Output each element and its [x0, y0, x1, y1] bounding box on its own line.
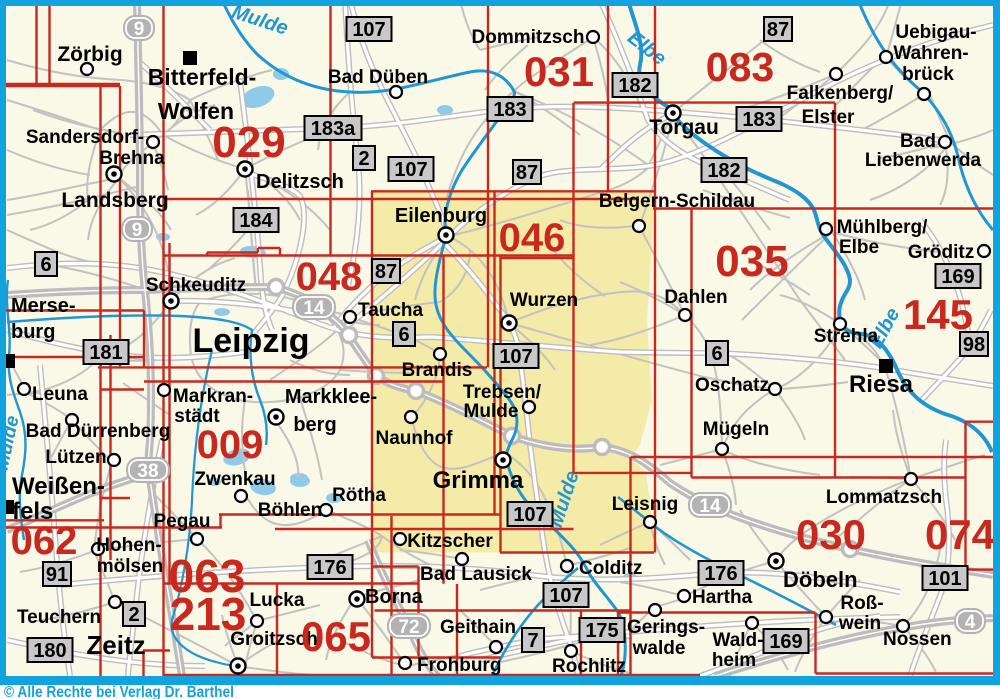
svg-text:38: 38 — [137, 461, 158, 482]
svg-text:Elbe: Elbe — [839, 237, 879, 258]
svg-text:Wahren-: Wahren- — [893, 43, 968, 64]
svg-text:Dahlen: Dahlen — [664, 287, 727, 308]
svg-text:Sandersdorf-: Sandersdorf- — [26, 127, 144, 148]
svg-text:9: 9 — [132, 220, 143, 241]
svg-text:6: 6 — [398, 324, 409, 346]
svg-text:Teuchern: Teuchern — [17, 607, 101, 628]
svg-text:176: 176 — [704, 563, 737, 585]
svg-text:183a: 183a — [311, 118, 356, 140]
svg-text:Rötha: Rötha — [332, 485, 386, 506]
svg-text:Trebsen/: Trebsen/ — [463, 382, 542, 403]
svg-text:181: 181 — [89, 342, 122, 364]
svg-text:Merse-: Merse- — [11, 295, 75, 317]
svg-text:2: 2 — [128, 604, 139, 626]
svg-text:Bad Dürrenberg: Bad Dürrenberg — [26, 421, 171, 442]
svg-text:107: 107 — [394, 159, 427, 181]
svg-text:Roß-: Roß- — [840, 593, 883, 614]
svg-text:walde: walde — [632, 638, 686, 659]
svg-text:031: 031 — [524, 48, 594, 95]
svg-text:Markran-: Markran- — [173, 386, 253, 407]
svg-text:Schkeuditz: Schkeuditz — [146, 275, 246, 296]
svg-text:107: 107 — [499, 346, 532, 368]
svg-text:Leuna: Leuna — [32, 384, 88, 405]
svg-text:Lützen: Lützen — [45, 447, 106, 468]
svg-text:87: 87 — [375, 261, 397, 283]
svg-text:Dommitzsch: Dommitzsch — [472, 27, 585, 48]
svg-text:035: 035 — [715, 237, 788, 286]
svg-text:182: 182 — [707, 160, 740, 182]
svg-text:Markklee-: Markklee- — [285, 386, 377, 408]
svg-text:184: 184 — [239, 210, 273, 232]
svg-text:72: 72 — [398, 617, 419, 638]
svg-text:048: 048 — [296, 255, 363, 299]
svg-text:Strehla: Strehla — [814, 326, 879, 347]
svg-text:Uebigau-: Uebigau- — [895, 22, 976, 43]
svg-text:Leisnig: Leisnig — [612, 494, 679, 515]
svg-text:Mügeln: Mügeln — [703, 419, 770, 440]
svg-text:berg: berg — [293, 414, 336, 436]
svg-text:Leipzig: Leipzig — [192, 322, 309, 360]
svg-text:Brehna: Brehna — [99, 148, 165, 169]
svg-text:4: 4 — [965, 612, 976, 633]
svg-text:2: 2 — [358, 148, 369, 170]
svg-text:Zwenkau: Zwenkau — [194, 469, 275, 490]
svg-text:101: 101 — [928, 568, 961, 590]
svg-text:062: 062 — [11, 519, 78, 563]
svg-text:176: 176 — [313, 557, 346, 579]
svg-text:Elster: Elster — [802, 107, 855, 128]
svg-text:029: 029 — [212, 118, 285, 167]
svg-text:Lucka: Lucka — [250, 590, 305, 611]
svg-text:Lommatzsch: Lommatzsch — [826, 487, 942, 508]
svg-text:Landsberg: Landsberg — [61, 189, 168, 212]
svg-text:Delitzsch: Delitzsch — [256, 171, 344, 193]
svg-text:Zörbig: Zörbig — [57, 43, 122, 66]
svg-text:Bad Düben: Bad Düben — [328, 67, 428, 88]
svg-text:Nossen: Nossen — [883, 629, 952, 650]
svg-text:180: 180 — [33, 640, 66, 662]
svg-text:6: 6 — [40, 254, 51, 276]
svg-text:Colditz: Colditz — [579, 558, 642, 579]
svg-text:065: 065 — [301, 613, 371, 660]
svg-text:Bitterfeld-: Bitterfeld- — [148, 64, 257, 90]
svg-text:Zeitz: Zeitz — [86, 630, 145, 660]
svg-text:91: 91 — [46, 564, 68, 586]
svg-text:Bad Lausick: Bad Lausick — [420, 564, 532, 585]
svg-text:213: 213 — [170, 588, 247, 640]
svg-text:Weißen-: Weißen- — [12, 473, 105, 500]
svg-text:mölsen: mölsen — [97, 556, 164, 577]
svg-text:046: 046 — [499, 216, 566, 260]
svg-text:Riesa: Riesa — [849, 371, 914, 398]
svg-text:Wurzen: Wurzen — [510, 290, 578, 311]
svg-text:Kitzscher: Kitzscher — [407, 531, 493, 552]
svg-text:Taucha: Taucha — [358, 300, 424, 321]
svg-text:Torgau: Torgau — [649, 116, 719, 139]
svg-text:107: 107 — [549, 585, 582, 607]
svg-text:© Alle Rechte bei Verlag Dr. B: © Alle Rechte bei Verlag Dr. Barthel — [4, 684, 234, 699]
svg-text:009: 009 — [197, 423, 264, 467]
svg-text:030: 030 — [796, 511, 866, 558]
svg-text:Gerings-: Gerings- — [627, 617, 705, 638]
svg-text:Rochlitz: Rochlitz — [552, 656, 626, 677]
svg-text:Döbeln: Döbeln — [783, 567, 858, 592]
svg-text:Wald-: Wald- — [712, 630, 763, 651]
svg-text:Oschatz: Oschatz — [695, 375, 769, 396]
svg-text:Belgern-Schildau: Belgern-Schildau — [599, 191, 755, 212]
svg-text:14: 14 — [303, 298, 325, 319]
svg-text:107: 107 — [513, 504, 546, 526]
svg-text:Gröditz: Gröditz — [908, 242, 975, 263]
svg-text:Grimma: Grimma — [433, 467, 524, 494]
svg-text:145: 145 — [903, 291, 973, 338]
svg-text:6: 6 — [711, 343, 722, 365]
svg-text:183: 183 — [742, 109, 775, 131]
svg-text:87: 87 — [767, 19, 789, 41]
svg-text:brück: brück — [902, 64, 954, 85]
svg-text:183: 183 — [493, 99, 526, 121]
svg-text:Liebenwerda: Liebenwerda — [865, 150, 982, 171]
svg-text:175: 175 — [585, 620, 618, 642]
svg-text:074: 074 — [925, 511, 996, 558]
svg-text:Pegau: Pegau — [153, 511, 210, 532]
svg-text:87: 87 — [516, 162, 538, 184]
svg-text:083: 083 — [706, 44, 774, 90]
svg-text:Hohen-: Hohen- — [96, 535, 161, 556]
svg-text:169: 169 — [769, 631, 802, 653]
svg-text:Mühlberg/: Mühlberg/ — [837, 217, 928, 238]
svg-text:Mulde: Mulde — [464, 401, 519, 422]
svg-text:Hartha: Hartha — [692, 587, 753, 608]
svg-text:Naunhof: Naunhof — [375, 428, 453, 449]
svg-text:Brandis: Brandis — [402, 360, 473, 381]
svg-text:wein: wein — [838, 613, 881, 634]
svg-text:Bad: Bad — [900, 131, 936, 152]
svg-text:Böhlen: Böhlen — [258, 500, 322, 521]
svg-text:107: 107 — [352, 19, 385, 41]
svg-text:9: 9 — [134, 19, 145, 40]
svg-text:heim: heim — [712, 650, 756, 671]
svg-text:Eilenburg: Eilenburg — [395, 205, 487, 227]
svg-text:182: 182 — [618, 75, 651, 97]
svg-text:Borna: Borna — [365, 586, 424, 608]
svg-text:burg: burg — [11, 321, 55, 343]
svg-text:14: 14 — [699, 496, 721, 517]
svg-text:Geithain: Geithain — [440, 617, 516, 638]
svg-text:Frohburg: Frohburg — [417, 655, 501, 676]
svg-text:Falkenberg/: Falkenberg/ — [787, 83, 894, 104]
svg-text:169: 169 — [941, 266, 974, 288]
svg-text:7: 7 — [527, 630, 538, 652]
